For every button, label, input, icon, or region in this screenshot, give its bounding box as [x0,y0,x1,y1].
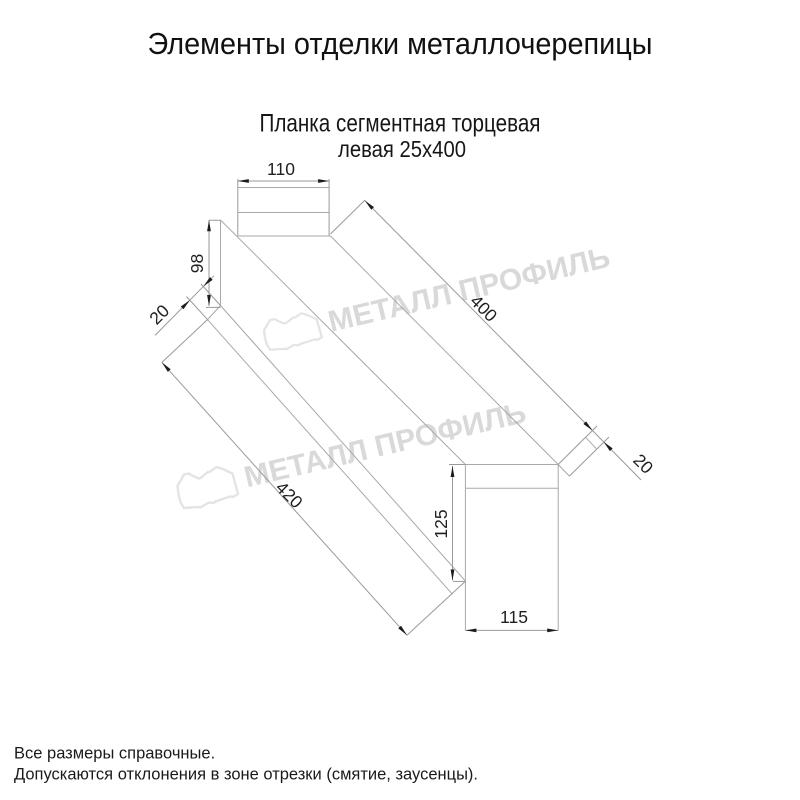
svg-text:110: 110 [267,159,295,179]
svg-text:115: 115 [500,607,528,627]
svg-text:98: 98 [187,254,207,273]
svg-text:125: 125 [431,509,451,538]
svg-text:Допускаются отклонения в зоне: Допускаются отклонения в зоне отрезки (с… [14,766,478,784]
svg-text:Элементы отделки металлочерепи: Элементы отделки металлочерепицы [148,27,653,61]
svg-text:левая 25х400: левая 25х400 [338,136,466,162]
svg-text:Планка сегментная торцевая: Планка сегментная торцевая [260,110,541,138]
svg-text:Все размеры справочные.: Все размеры справочные. [14,745,215,763]
